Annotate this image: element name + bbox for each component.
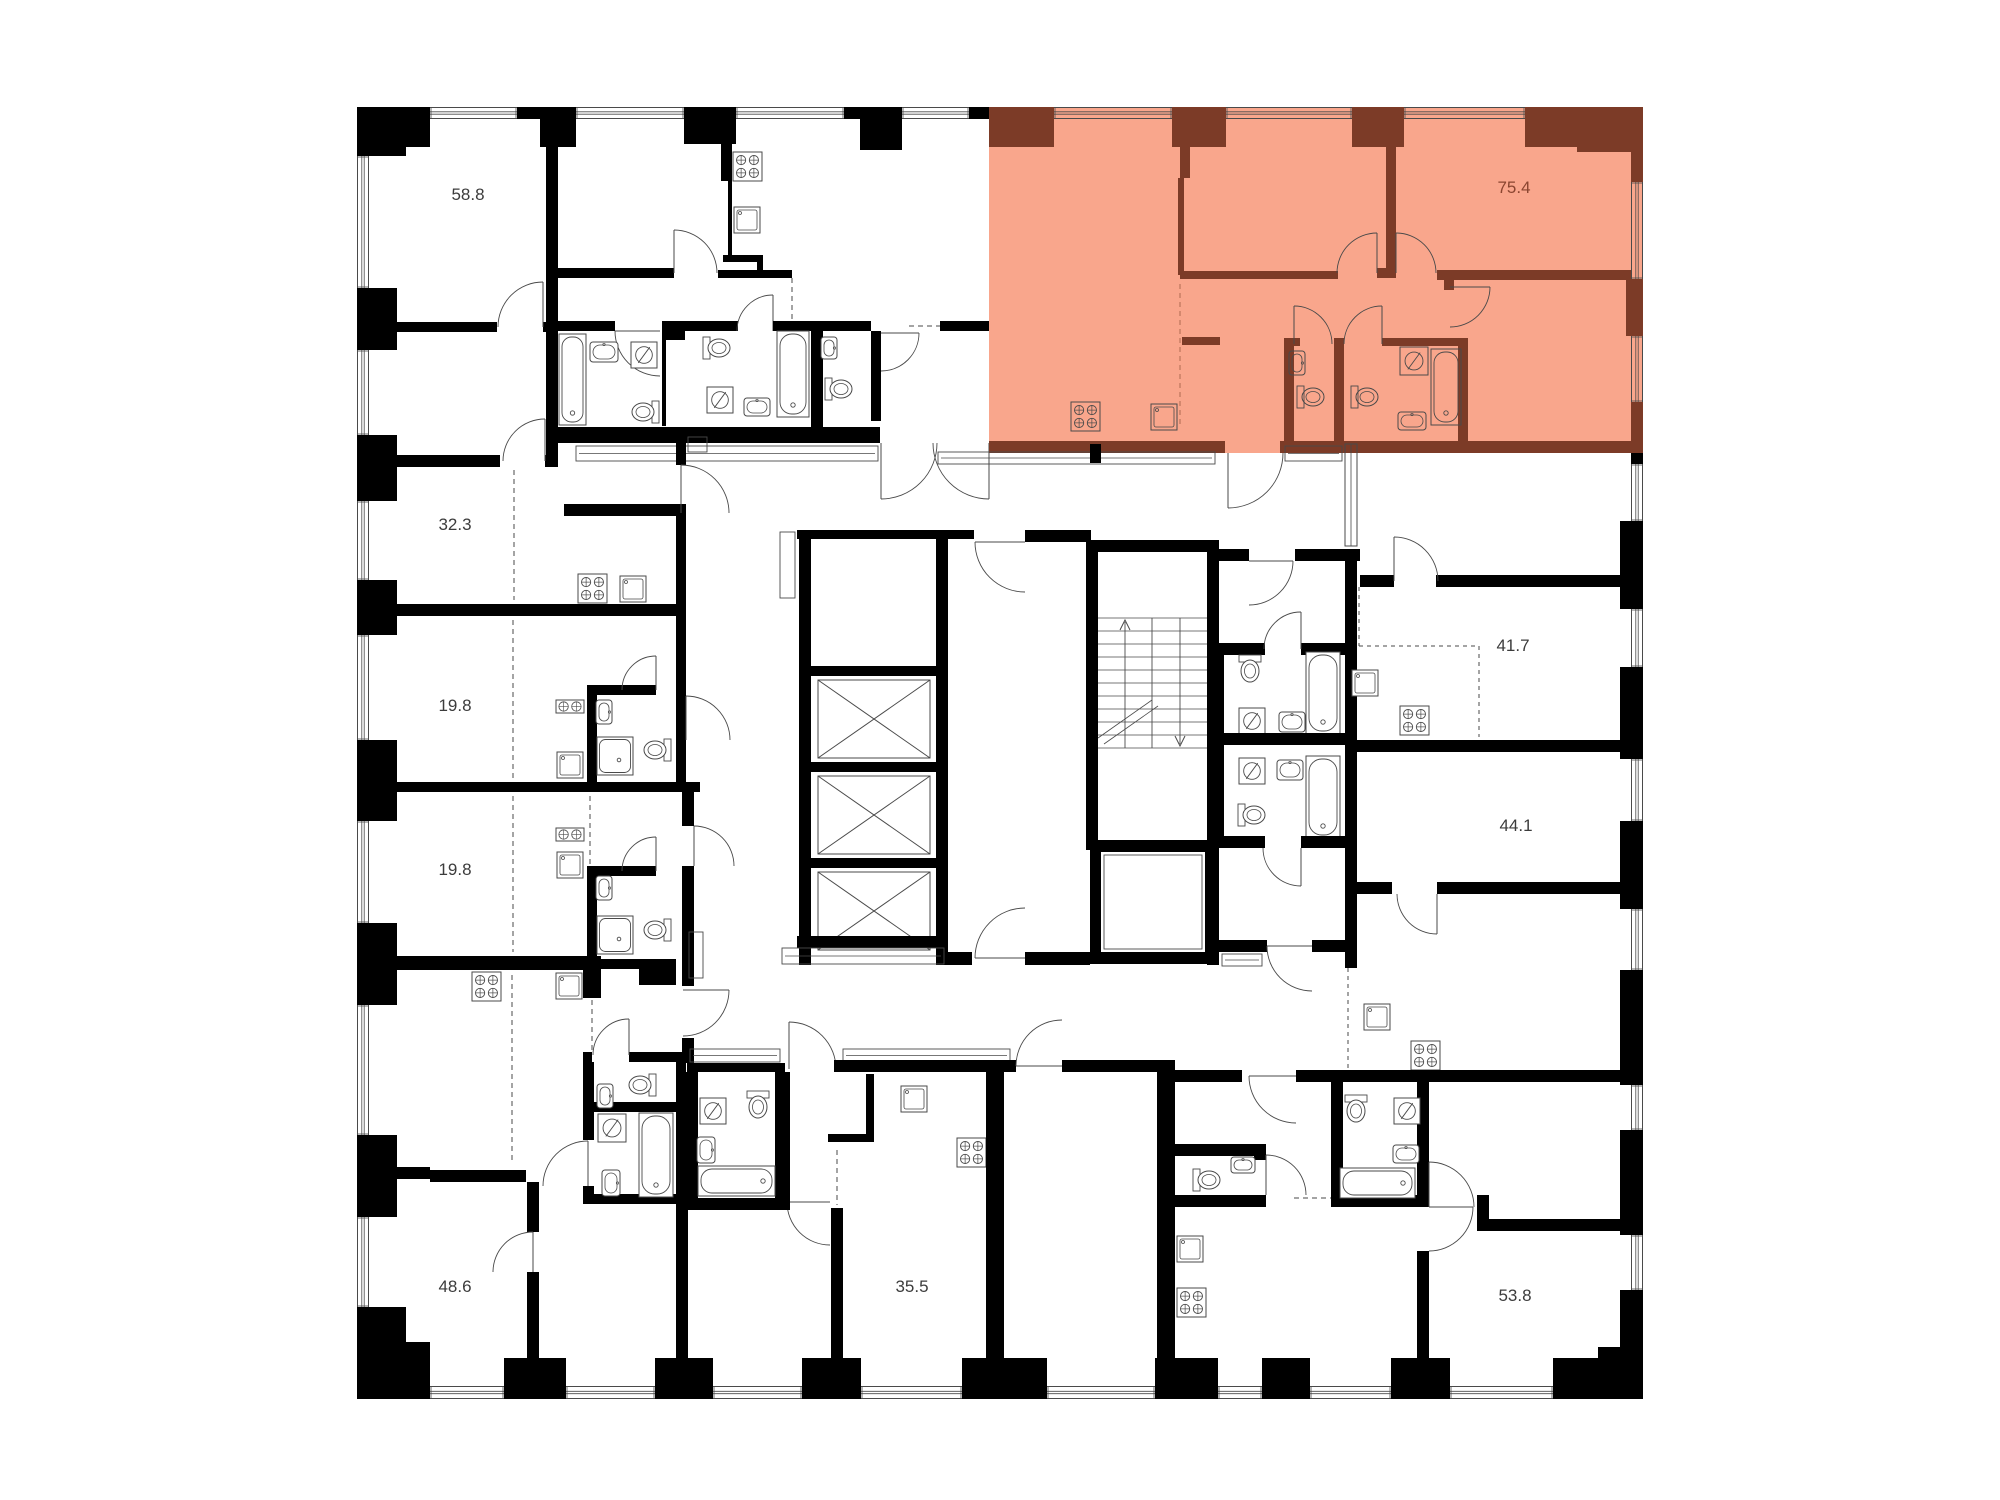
svg-text:19.8: 19.8	[438, 860, 471, 879]
svg-text:48.6: 48.6	[438, 1277, 471, 1296]
svg-text:32.3: 32.3	[438, 515, 471, 534]
svg-text:35.5: 35.5	[895, 1277, 928, 1296]
svg-text:75.4: 75.4	[1497, 178, 1530, 197]
svg-text:44.1: 44.1	[1499, 816, 1532, 835]
svg-text:19.8: 19.8	[438, 696, 471, 715]
svg-text:41.7: 41.7	[1496, 636, 1529, 655]
svg-text:58.8: 58.8	[451, 185, 484, 204]
svg-text:53.8: 53.8	[1498, 1286, 1531, 1305]
